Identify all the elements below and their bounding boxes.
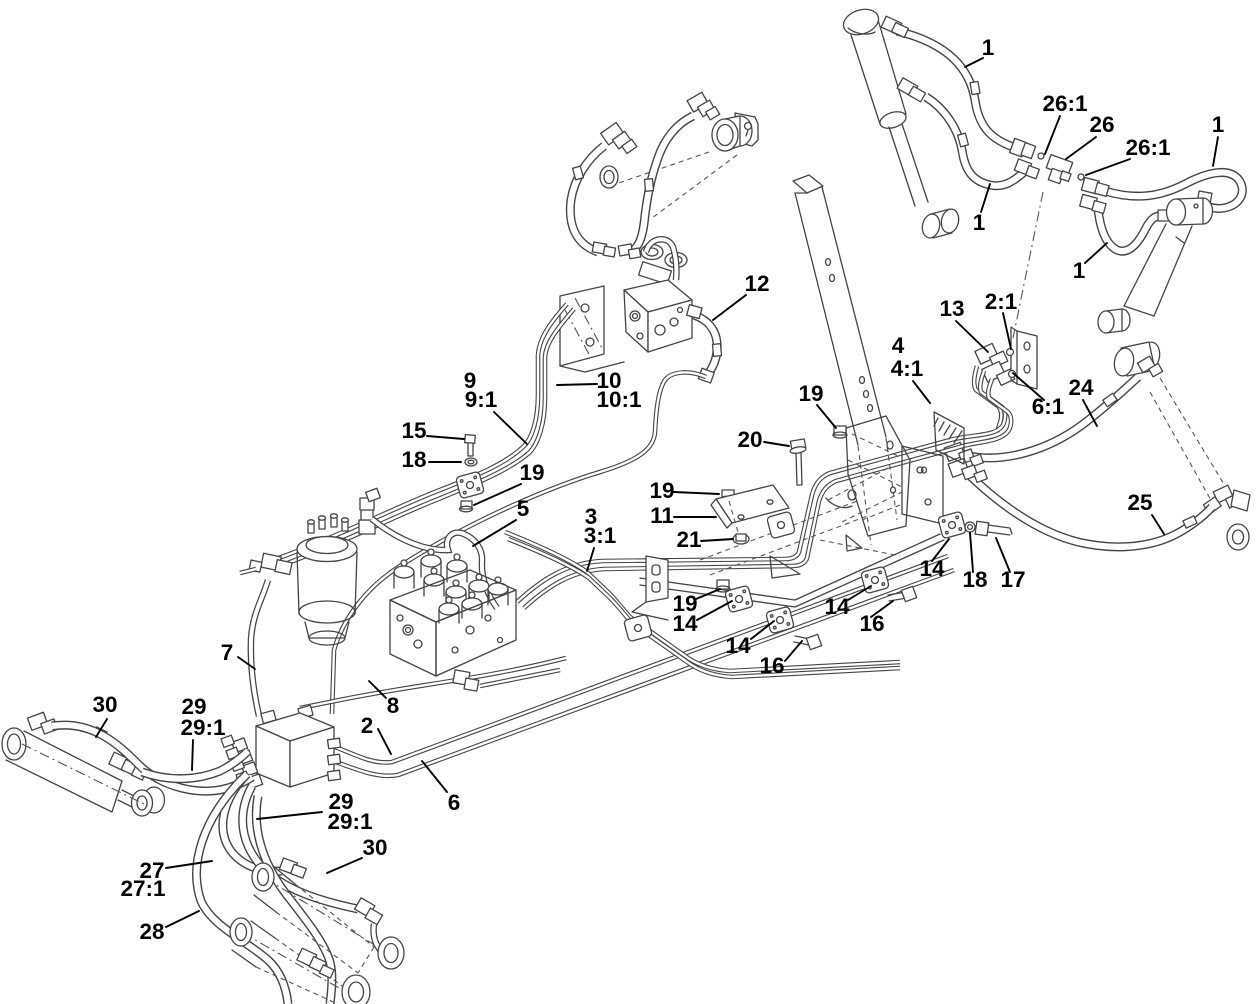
svg-text:18: 18 [401,447,426,472]
svg-text:13: 13 [939,296,964,321]
svg-text:4:1: 4:1 [891,356,924,381]
svg-text:3:1: 3:1 [584,523,617,548]
svg-text:14: 14 [672,611,698,636]
svg-text:20: 20 [737,427,762,452]
svg-text:19: 19 [798,381,823,406]
svg-text:1: 1 [973,210,986,235]
svg-text:5: 5 [517,496,530,521]
svg-text:27:1: 27:1 [120,876,165,901]
svg-text:19: 19 [649,478,674,503]
svg-text:19: 19 [519,460,544,485]
svg-text:6: 6 [448,790,461,815]
svg-text:2:1: 2:1 [985,289,1018,314]
svg-text:7: 7 [221,640,234,665]
svg-text:16: 16 [759,653,784,678]
svg-text:18: 18 [962,567,987,592]
svg-text:4: 4 [892,333,905,358]
svg-text:30: 30 [362,835,387,860]
svg-text:8: 8 [387,693,400,718]
svg-text:10:1: 10:1 [596,387,641,412]
svg-text:2: 2 [361,713,374,738]
svg-text:26:1: 26:1 [1125,135,1170,160]
svg-text:28: 28 [139,919,164,944]
svg-text:11: 11 [650,503,674,528]
svg-text:24: 24 [1068,375,1094,400]
svg-text:15: 15 [401,418,426,443]
svg-text:29:1: 29:1 [180,715,225,740]
svg-text:1: 1 [982,35,995,60]
svg-text:1: 1 [1073,258,1086,283]
svg-text:16: 16 [859,611,884,636]
svg-text:26: 26 [1089,112,1114,137]
svg-text:9:1: 9:1 [465,387,498,412]
svg-text:17: 17 [1000,567,1025,592]
svg-text:14: 14 [919,556,945,581]
svg-text:29:1: 29:1 [327,809,372,834]
svg-text:1: 1 [1212,112,1225,137]
svg-text:30: 30 [92,692,117,717]
svg-text:14: 14 [725,633,751,658]
svg-text:12: 12 [744,271,769,296]
svg-text:6:1: 6:1 [1032,394,1065,419]
svg-text:21: 21 [676,527,701,552]
svg-text:26:1: 26:1 [1042,91,1087,116]
svg-text:14: 14 [824,594,850,619]
svg-text:25: 25 [1127,490,1152,515]
